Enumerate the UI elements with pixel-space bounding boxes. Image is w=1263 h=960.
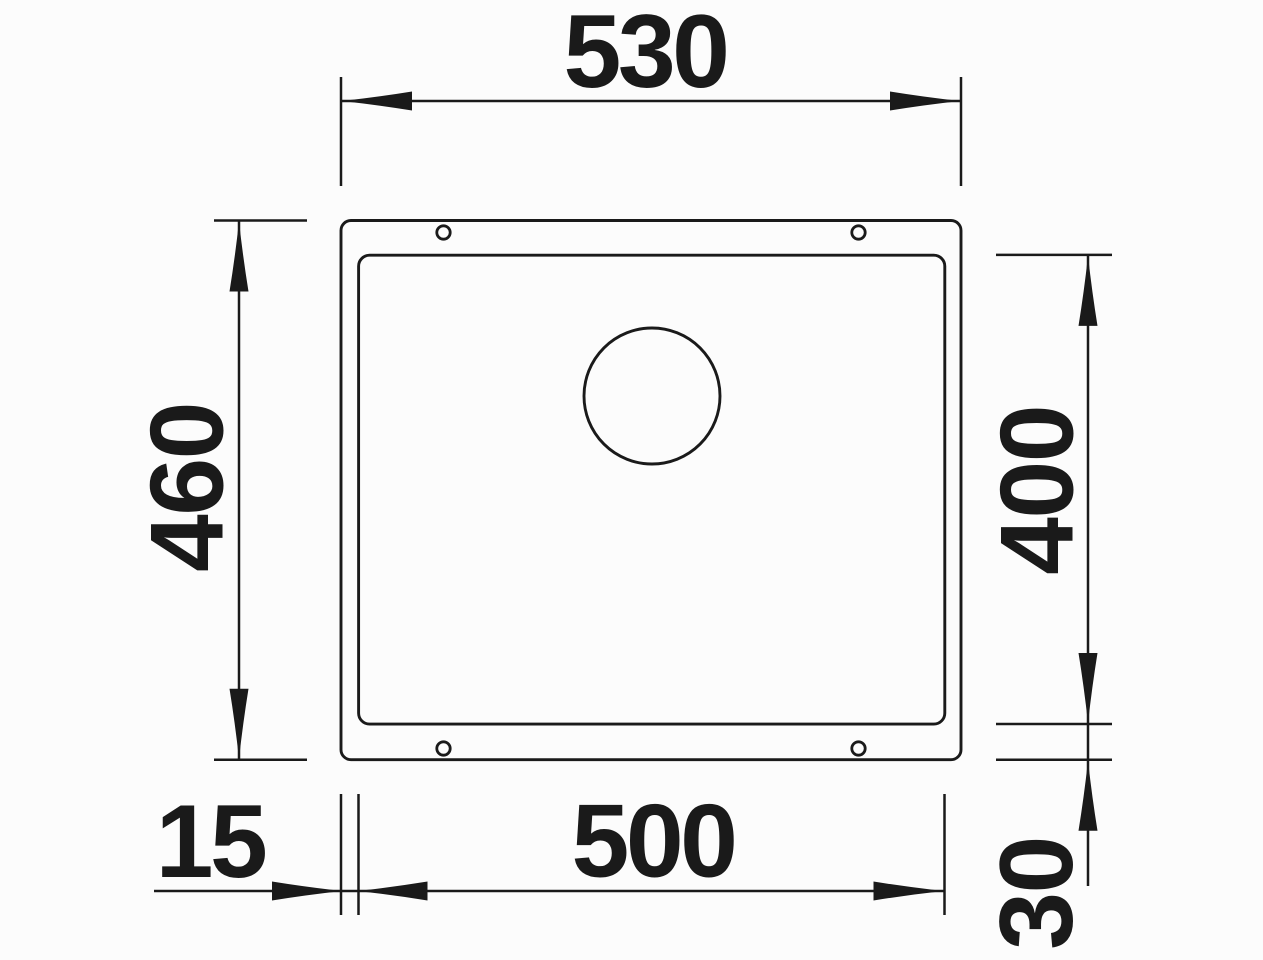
svg-text:530: 530 [563,0,726,110]
svg-text:400: 400 [980,406,1096,575]
svg-text:460: 460 [129,403,245,572]
svg-text:500: 500 [571,784,734,900]
svg-text:30: 30 [979,837,1095,950]
svg-text:15: 15 [156,784,265,900]
